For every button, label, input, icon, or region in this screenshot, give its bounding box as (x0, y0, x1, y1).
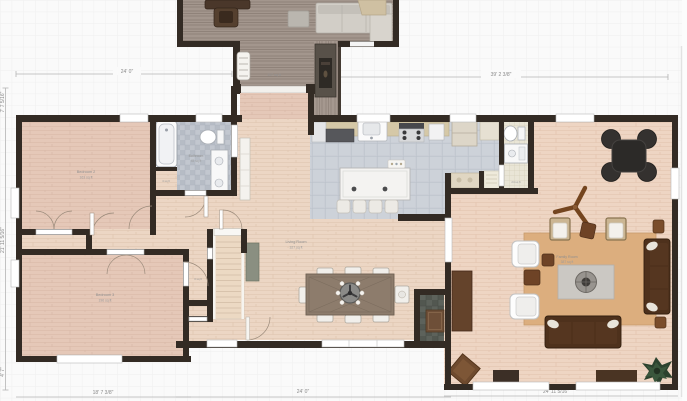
svg-text:387 sq ft: 387 sq ft (561, 260, 574, 264)
svg-text:Bedroom 3: Bedroom 3 (96, 293, 115, 297)
svg-text:4 sq ft: 4 sq ft (162, 179, 170, 183)
svg-text:Family Room: Family Room (556, 255, 577, 259)
svg-text:196 sq ft: 196 sq ft (98, 299, 111, 303)
svg-text:Living Room: Living Room (285, 240, 306, 244)
svg-text:3 sq ft: 3 sq ft (194, 277, 202, 281)
svg-text:45 sq ft: 45 sq ft (191, 159, 202, 163)
svg-text:4' 7": 4' 7" (0, 367, 6, 377)
svg-text:24 sq ft: 24 sq ft (511, 180, 520, 184)
svg-text:117 sq ft: 117 sq ft (267, 73, 281, 77)
svg-text:39' 2 3/8": 39' 2 3/8" (491, 72, 512, 78)
svg-text:7' 7 5/16": 7' 7 5/16" (0, 91, 6, 112)
svg-text:24' 0": 24' 0" (297, 389, 310, 395)
svg-text:163 sq ft: 163 sq ft (79, 176, 92, 180)
svg-text:Bedroom 2: Bedroom 2 (77, 170, 96, 174)
svg-text:24' 0": 24' 0" (121, 69, 134, 75)
svg-text:18' 7 3/8": 18' 7 3/8" (93, 390, 114, 396)
svg-text:21' 11 5/16": 21' 11 5/16" (0, 227, 6, 253)
svg-text:327 sq ft: 327 sq ft (289, 246, 302, 250)
svg-text:Bathroom: Bathroom (189, 154, 204, 158)
